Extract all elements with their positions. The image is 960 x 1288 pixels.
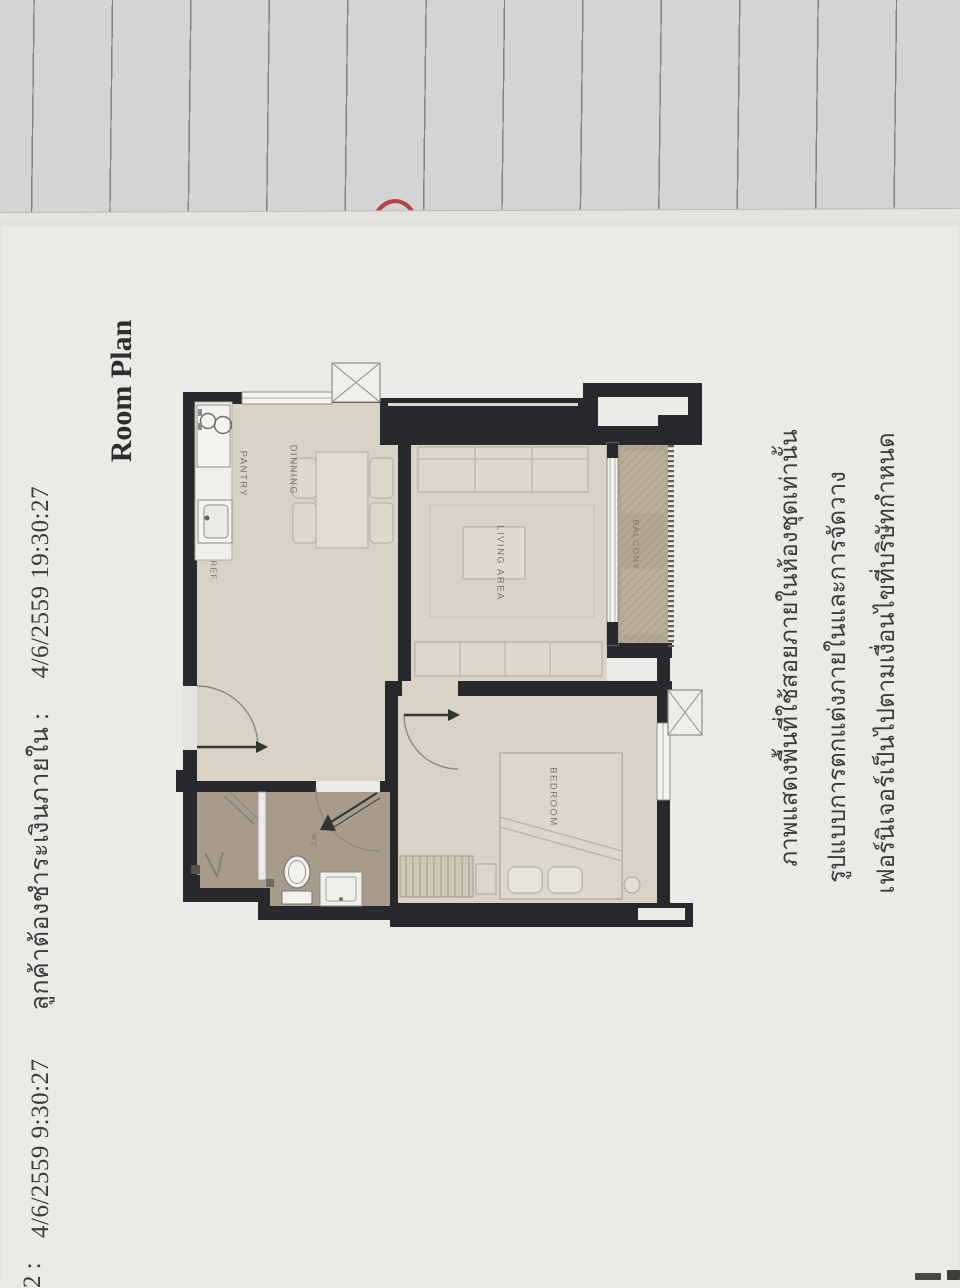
ruled-paper-lines — [0, 0, 960, 222]
disclaimer-line-1: ภาพแสดงพื้นที่ใช้สอยภายในห้องชุดเท่านั้น — [769, 338, 803, 958]
wall-cap — [607, 622, 618, 645]
wardrobe-hatch — [400, 856, 473, 897]
chair — [293, 503, 316, 543]
disclaimer-line-3: เฟอร์นิเจอร์เป็นไปตามเงื่อนไขที่บริษัทกำ… — [866, 348, 900, 978]
wall-cavity-line — [388, 403, 578, 406]
faucet — [205, 516, 210, 521]
balcony-hatch — [618, 445, 668, 643]
bedroom-doorway — [402, 681, 458, 696]
pillow — [508, 867, 542, 893]
dining-table — [316, 452, 368, 548]
cut-off-glyph-mark — [947, 1270, 960, 1280]
coffee-table — [463, 527, 525, 579]
stove-knob — [198, 409, 202, 416]
page-title: Room Plan — [105, 311, 139, 471]
tv-stand — [476, 864, 496, 894]
sofa — [418, 447, 588, 492]
floor-drain — [191, 865, 200, 874]
bedroom-label: BEDROOM — [548, 767, 559, 827]
bottom-wall-window-inset — [638, 908, 685, 920]
dining-label: DINNING — [288, 445, 299, 496]
shower-partition — [258, 792, 266, 880]
nightstand — [624, 877, 640, 893]
ruled-notebook-paper — [0, 0, 960, 222]
wc-label: WC — [310, 834, 317, 849]
entrance-doorway — [183, 686, 197, 750]
balcony-sliding-door — [607, 443, 618, 645]
vanity-drain — [339, 897, 343, 901]
refrigerator-label: REF. — [209, 560, 218, 583]
cut-off-glyph-mark — [915, 1273, 941, 1280]
floor-plan: PANTRY DINNING REF. LIVING AREA BALCONY … — [160, 355, 720, 935]
printed-timestamp: 4/6/2559 9:30:27 — [27, 1058, 54, 1238]
pillow — [548, 867, 582, 893]
cut-off-text-fragment: 2 : — [19, 1228, 49, 1288]
payment-notice-label: ลูกค้าต้องชำระเงินภายใน : — [27, 712, 54, 1010]
sink-basin — [204, 505, 228, 538]
wall-cap — [607, 443, 618, 458]
payment-deadline-line: 4/6/2559 9:30:27ลูกค้าต้องชำระเงินภายใน … — [20, 328, 52, 1238]
pantry-label: PANTRY — [238, 451, 249, 498]
balcony-label: BALCONY — [631, 519, 641, 570]
chair — [370, 458, 393, 498]
stove-knob — [198, 423, 202, 430]
chair — [370, 503, 393, 543]
tv-console — [415, 642, 602, 676]
floor-drain — [266, 879, 274, 887]
kitchen — [195, 402, 232, 560]
payment-deadline-timestamp: 4/6/2559 19:30:27 — [27, 486, 54, 679]
photographed-room-plan-document: { "document": { "printed_at": "4/6/2559 … — [0, 0, 960, 1280]
toilet-tank — [282, 891, 312, 904]
living-area-label: LIVING AREA — [495, 525, 506, 601]
disclaimer-line-2: รูปแบบการตกแต่งภายในและการจัดวาง — [817, 382, 851, 972]
